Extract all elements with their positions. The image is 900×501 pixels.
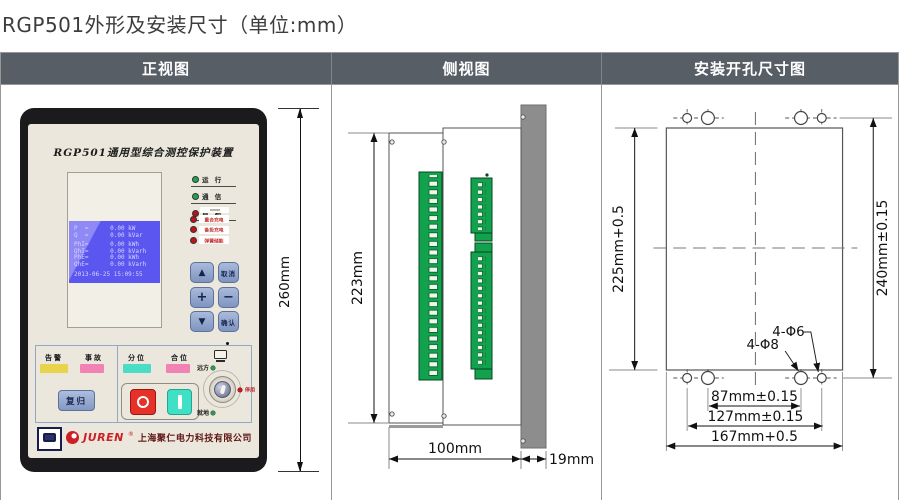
device-model-title: RGP501通用型综合测控保护装置 xyxy=(28,145,259,160)
views-table: 正视图 侧视图 安装开孔尺寸图 RGP501通用型综合测控保护装置 P = 0.… xyxy=(0,52,899,500)
comm-led-icon xyxy=(193,194,198,199)
cancel-button: 取消 xyxy=(218,262,239,283)
confirm-button: 确认 xyxy=(218,311,239,332)
alarm-indicator xyxy=(40,364,68,373)
run-led-label: 运 行 xyxy=(202,174,223,184)
panel-thickness-label: 19mm xyxy=(549,452,594,468)
terminal-block-right-top xyxy=(471,173,492,241)
side-height-label: 223mm xyxy=(350,251,366,305)
disabled-led-icon xyxy=(238,388,242,392)
cutout-rectangle xyxy=(666,128,842,370)
holes-height-label: 240mm±0.15 xyxy=(875,200,891,297)
divider xyxy=(35,422,252,423)
down-button: ▼ xyxy=(190,311,214,332)
terminal-block-left xyxy=(419,172,442,380)
divider xyxy=(35,345,252,346)
local-mode-label: 就地 xyxy=(197,408,215,417)
page: RGP501外形及安装尺寸（单位:mm） 正视图 侧视图 安装开孔尺寸图 RGP… xyxy=(0,0,900,501)
extension-line xyxy=(278,108,319,109)
table-body-row: RGP501通用型综合测控保护装置 P = 0.00 kW Q = 0.00 k… xyxy=(1,85,898,500)
alarm-label: 告警 xyxy=(39,353,69,363)
close-bar-icon xyxy=(178,395,182,409)
charge-led-row: 备投充电 xyxy=(191,226,236,234)
up-button: ▲ xyxy=(190,262,214,283)
divider xyxy=(251,345,252,422)
mounting-panel-bar xyxy=(521,105,546,448)
key-switch xyxy=(209,376,236,403)
hole-d8-label: 4-Φ8 xyxy=(747,338,779,353)
comm-led-label: 通 信 xyxy=(202,191,223,201)
open-button-o xyxy=(130,389,156,415)
reset-button: 复归 xyxy=(58,390,95,411)
open-circle-icon xyxy=(137,396,149,408)
plus-button: + xyxy=(190,287,214,308)
cutout-width-label: 167mm+0.5 xyxy=(711,429,798,445)
minus-button: − xyxy=(218,287,239,308)
page-title: RGP501外形及安装尺寸（单位:mm） xyxy=(2,9,357,38)
lcd-timestamp: 2013-06-25 15:09:55 xyxy=(74,272,158,279)
status-led-row: 通 信 xyxy=(191,191,236,204)
remote-mode-label: 远方 xyxy=(197,363,215,372)
open-pos-indicator xyxy=(123,364,151,373)
front-view-panel: RGP501通用型综合测控保护装置 P = 0.00 kW Q = 0.00 k… xyxy=(1,85,331,500)
divider xyxy=(117,345,118,422)
disabled-mode-label: 停用 xyxy=(238,385,256,394)
usb-icon xyxy=(37,427,62,451)
charge-led-group: 重合充电 备投充电 弹簧储能 xyxy=(191,215,236,247)
header-front-view: 正视图 xyxy=(1,53,331,84)
front-height-dimension-label: 260mm xyxy=(277,252,293,312)
open-pos-label: 分位 xyxy=(122,353,152,363)
device-faceplate: RGP501通用型综合测控保护装置 P = 0.00 kW Q = 0.00 k… xyxy=(28,124,259,458)
extension-line xyxy=(278,471,319,472)
install-view-panel: 225mm+0.5 240mm±0.15 4-Φ6 4-Φ8 xyxy=(601,85,898,500)
charge-led-row: 重合充电 xyxy=(191,215,236,223)
divider xyxy=(35,345,36,422)
open-close-button-group xyxy=(121,383,199,420)
lcd-screen: P = 0.00 kW Q = 0.00 kVar PhI= 0.00 kWh … xyxy=(69,221,160,283)
side-view-panel: 223mm 100mm 19mm xyxy=(331,85,601,500)
recharge-led-label: 重合充电 xyxy=(204,215,223,222)
close-pos-label: 合位 xyxy=(165,353,195,363)
backup-led-icon xyxy=(191,227,196,232)
outer-holes-span-label: 127mm±0.15 xyxy=(708,409,804,425)
remote-led-icon xyxy=(211,366,215,370)
spring-led-icon xyxy=(191,238,196,243)
keyhole-icon xyxy=(214,381,231,398)
table-header-row: 正视图 侧视图 安装开孔尺寸图 xyxy=(1,53,898,85)
computer-icon xyxy=(214,350,227,362)
terminal-block-right-bottom xyxy=(471,243,492,379)
recharge-led-icon xyxy=(191,217,196,222)
fault-indicator xyxy=(80,364,104,373)
lcd-line: Q = 0.00 kVar xyxy=(74,233,158,240)
backup-led-label: 备投充电 xyxy=(204,226,223,233)
brand-company: 上海聚仁电力科技有限公司 xyxy=(138,431,252,444)
header-install-view: 安装开孔尺寸图 xyxy=(601,53,898,84)
charge-led-row: 弹簧储能 xyxy=(191,236,236,244)
brand-row: JUREN ® 上海聚仁电力科技有限公司 xyxy=(64,431,254,444)
juren-logo-icon xyxy=(66,431,79,444)
inner-holes-span-label: 87mm±0.15 xyxy=(711,389,798,405)
cutout-height-label: 225mm+0.5 xyxy=(611,205,627,293)
run-led-icon xyxy=(193,177,198,182)
side-depth-label: 100mm xyxy=(428,441,482,457)
install-cutout-drawing: 225mm+0.5 240mm±0.15 4-Φ6 4-Φ8 xyxy=(602,85,898,500)
brand-name: JUREN xyxy=(83,431,124,444)
side-view-drawing: 223mm 100mm 19mm xyxy=(332,85,601,500)
header-side-view: 侧视图 xyxy=(331,53,601,84)
nameplate-strip xyxy=(200,207,229,213)
fault-label: 事故 xyxy=(79,353,109,363)
lcd-line: QhE= 0.00 kVarh xyxy=(74,262,158,269)
divider-dot xyxy=(226,342,229,345)
local-led-icon xyxy=(211,411,215,415)
spring-led-label: 弹簧储能 xyxy=(204,236,223,243)
front-height-dimension-line xyxy=(300,108,301,472)
registered-mark: ® xyxy=(128,431,134,438)
status-led-row: 运 行 xyxy=(191,174,236,187)
close-button-i xyxy=(167,389,192,415)
close-pos-indicator xyxy=(166,364,190,373)
